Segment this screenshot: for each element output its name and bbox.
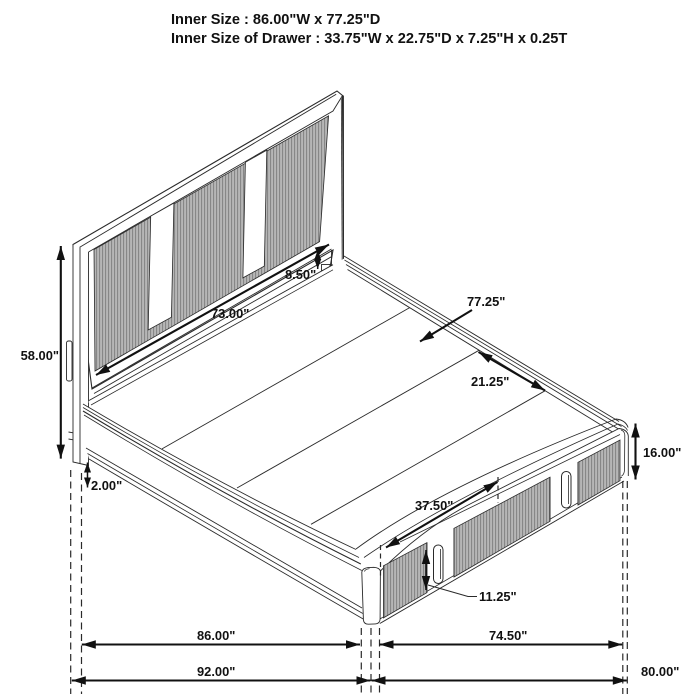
svg-text:8.50": 8.50" xyxy=(285,267,316,282)
svg-text:Inner Size : 86.00"W x 77.25"D: Inner Size : 86.00"W x 77.25"D xyxy=(171,12,380,28)
svg-text:92.00": 92.00" xyxy=(197,664,235,679)
svg-text:77.25": 77.25" xyxy=(467,294,505,309)
svg-text:21.25": 21.25" xyxy=(471,374,509,389)
svg-text:16.00": 16.00" xyxy=(643,445,681,460)
svg-text:58.00": 58.00" xyxy=(21,348,59,363)
svg-text:11.25": 11.25" xyxy=(479,589,517,604)
svg-text:74.50": 74.50" xyxy=(489,628,527,643)
svg-text:86.00": 86.00" xyxy=(197,628,235,643)
svg-text:80.00": 80.00" xyxy=(641,664,679,679)
svg-text:37.50": 37.50" xyxy=(415,498,453,513)
svg-text:2.00": 2.00" xyxy=(91,478,122,493)
svg-text:73.00": 73.00" xyxy=(211,306,249,321)
svg-text:Inner Size of Drawer : 33.75"W: Inner Size of Drawer : 33.75"W x 22.75"D… xyxy=(171,31,567,47)
